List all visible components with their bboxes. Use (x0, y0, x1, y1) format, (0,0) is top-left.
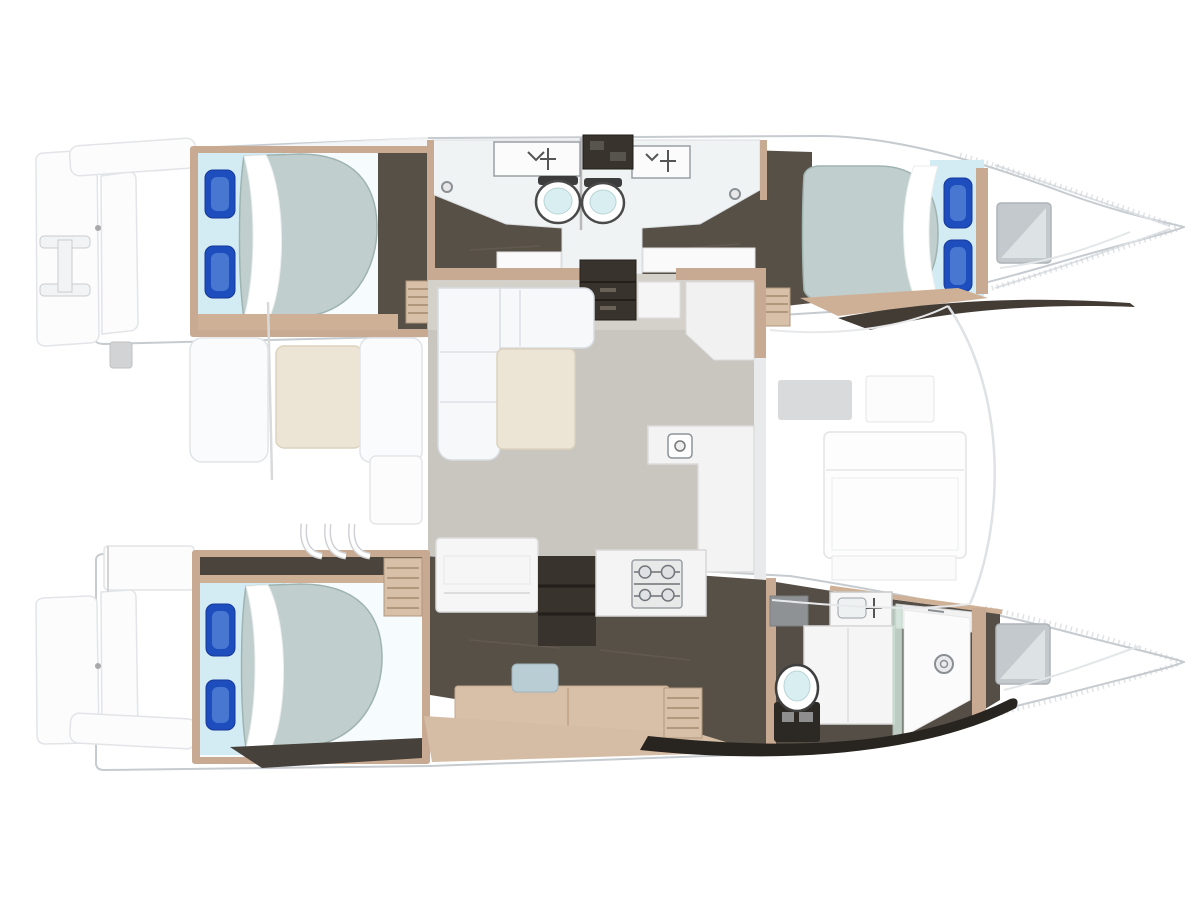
foot-dresser (198, 314, 398, 330)
door-handle (730, 189, 740, 199)
toilet-icon (774, 665, 820, 742)
salon-top-wall (428, 268, 580, 280)
port-aft-cabin (190, 146, 435, 337)
foredeck (770, 306, 995, 608)
shelf-unit (538, 556, 596, 646)
bathroom-wall-left (427, 140, 434, 198)
platform-inner-panel (101, 172, 138, 334)
stove-icon (632, 560, 682, 608)
bed-pillow (944, 240, 972, 292)
vanity-sink (830, 592, 892, 626)
coffee-table (497, 349, 575, 449)
shower-bow-wall (972, 608, 986, 716)
toilet-aft-icon (536, 176, 580, 223)
bed-pillow (205, 246, 235, 298)
deck-gray-pad (778, 380, 852, 420)
deck-fitting-dot (95, 225, 101, 231)
cockpit-steps (304, 524, 370, 556)
helm-box (370, 456, 422, 524)
bench-seat-right (360, 338, 422, 462)
white-cabinet (638, 282, 680, 318)
starboard-forward-steps (664, 688, 702, 738)
starboard-hull-interior (192, 538, 1140, 768)
bed-pillow (206, 604, 235, 656)
bed-pillow (205, 170, 235, 218)
lounge-panel (824, 432, 966, 558)
seat-stool (512, 664, 558, 692)
lounge-panel-lower (832, 556, 956, 580)
salon-right-wall (754, 268, 766, 358)
catamaran-floorplan (0, 0, 1200, 900)
bathroom-wall-right (760, 140, 767, 200)
salon (428, 260, 766, 584)
shower-glass-panel (893, 606, 902, 740)
salon-top-wall (676, 268, 766, 280)
bench-cabinet (436, 538, 538, 612)
salon-right-wall-lower (754, 358, 766, 584)
galley-stove-counter (596, 550, 706, 616)
galley-sink (668, 434, 692, 458)
cabin-bow-wall (976, 168, 988, 294)
sink-counter-aft (494, 142, 580, 176)
sink-counter-forward (632, 146, 690, 178)
door-handle (442, 182, 452, 192)
shower-drain-icon (935, 655, 953, 673)
cockpit-table (276, 346, 362, 448)
bench-seat-left (190, 338, 268, 462)
transom-bar (69, 713, 196, 750)
deck-fitting-dot (95, 663, 101, 669)
starboard-companionway-steps (384, 558, 422, 616)
deck-white-pad (866, 376, 934, 422)
floorplan-canvas (0, 0, 1200, 900)
deck-hatch-icon (583, 135, 633, 169)
transom-step-panel (104, 546, 194, 590)
port-forward-steps (762, 288, 790, 326)
deck-cleat (110, 342, 132, 368)
bed-pillow (944, 178, 972, 228)
toilet-forward-icon (582, 178, 624, 223)
bed-pillow (206, 680, 235, 730)
